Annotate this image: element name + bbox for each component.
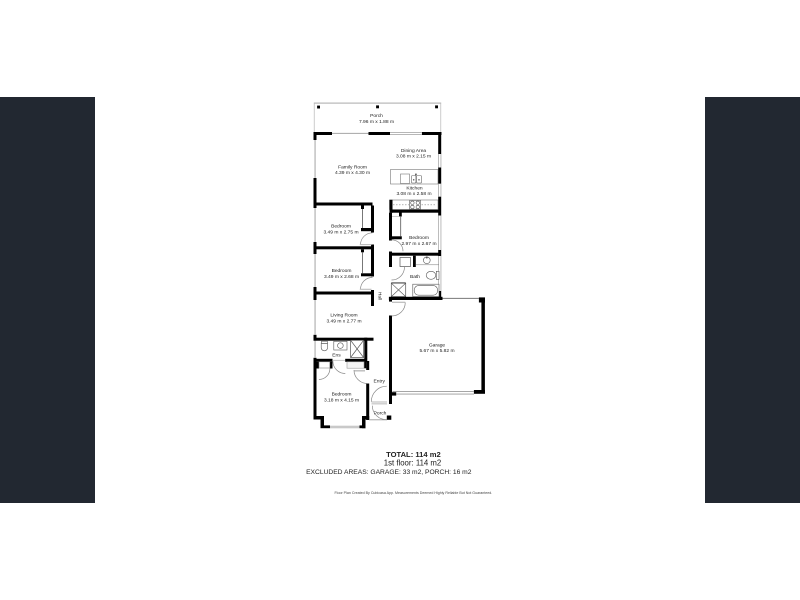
svg-text:3.49 m x 2.77 m: 3.49 m x 2.77 m (326, 318, 361, 324)
svg-text:3.08 m x 2.15 m: 3.08 m x 2.15 m (396, 154, 431, 160)
svg-text:4.39 m x 4.30 m: 4.39 m x 4.30 m (335, 170, 370, 176)
svg-text:Entry: Entry (373, 378, 385, 384)
svg-text:Porch: Porch (370, 113, 383, 119)
svg-text:3.49 m x 2.68 m: 3.49 m x 2.68 m (324, 274, 359, 280)
svg-text:Bedroom: Bedroom (409, 235, 429, 241)
svg-text:3.49 m x 2.75 m: 3.49 m x 2.75 m (323, 229, 358, 235)
svg-text:Bedroom: Bedroom (332, 268, 352, 274)
svg-text:Ens: Ens (332, 353, 341, 359)
svg-text:Dining Area: Dining Area (401, 148, 427, 154)
svg-text:Bath: Bath (410, 274, 420, 280)
svg-text:Kitchen: Kitchen (406, 186, 423, 192)
svg-text:5.67 m x 5.82 m: 5.67 m x 5.82 m (419, 348, 454, 354)
svg-text:Bedroom: Bedroom (332, 392, 352, 398)
svg-text:Floor Plan Created By Cubicasa: Floor Plan Created By Cubicasa App. Meas… (334, 491, 492, 495)
svg-text:Porch: Porch (374, 411, 387, 417)
svg-text:EXCLUDED AREAS: GARAGE: 33 m2,: EXCLUDED AREAS: GARAGE: 33 m2, PORCH: 16… (306, 469, 472, 476)
svg-text:1st floor: 114 m2: 1st floor: 114 m2 (384, 458, 442, 467)
svg-text:3.18 m x 4.15 m: 3.18 m x 4.15 m (324, 397, 359, 403)
svg-text:2.97 m x 2.67 m: 2.97 m x 2.67 m (401, 241, 436, 247)
svg-text:Garage: Garage (429, 343, 446, 349)
svg-text:7.96 m x 1.88 m: 7.96 m x 1.88 m (359, 119, 394, 125)
svg-text:Family Room: Family Room (338, 165, 367, 171)
svg-text:3.08 m x 2.58 m: 3.08 m x 2.58 m (396, 191, 431, 197)
svg-text:Living Room: Living Room (330, 313, 357, 319)
svg-text:Hall: Hall (377, 292, 382, 300)
svg-text:Bedroom: Bedroom (331, 224, 351, 230)
